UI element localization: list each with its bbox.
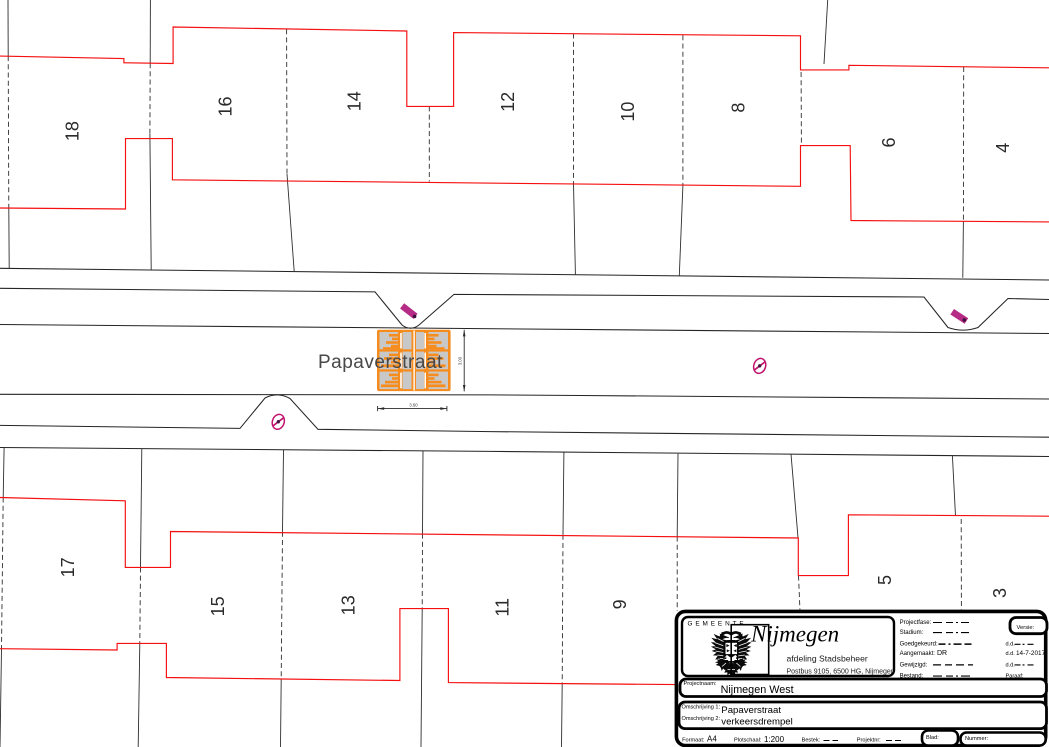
svg-text:Formaat:: Formaat:	[682, 737, 705, 743]
svg-text:d.d.: d.d.	[1006, 651, 1016, 657]
svg-text:6: 6	[879, 137, 899, 147]
svg-text:A4: A4	[707, 735, 717, 744]
svg-text:Projektnr:: Projektnr:	[857, 737, 881, 743]
svg-text:18: 18	[62, 121, 82, 141]
svg-text:Papaverstraat: Papaverstraat	[318, 352, 443, 373]
svg-text:8: 8	[728, 103, 748, 113]
svg-text:17: 17	[58, 557, 78, 577]
svg-text:d.d.: d.d.	[1006, 663, 1016, 669]
svg-text:DR: DR	[937, 650, 947, 657]
svg-text:16: 16	[216, 96, 236, 116]
svg-text:14: 14	[344, 91, 364, 111]
svg-text:verkeersdrempel: verkeersdrempel	[721, 716, 792, 727]
svg-text:d.d.: d.d.	[1006, 642, 1016, 648]
svg-text:Papaverstraat: Papaverstraat	[721, 705, 781, 716]
svg-text:11: 11	[493, 598, 513, 617]
svg-text:afdeling Stadsbeheer: afdeling Stadsbeheer	[787, 654, 868, 664]
svg-text:3: 3	[990, 588, 1010, 598]
svg-text:Blad:: Blad:	[926, 735, 939, 741]
svg-text:Omschrijving 2:: Omschrijving 2:	[682, 716, 721, 722]
svg-text:Versie:: Versie:	[1017, 625, 1035, 631]
svg-text:Stadium:: Stadium:	[900, 630, 924, 636]
svg-text:15: 15	[208, 596, 228, 616]
svg-text:Gewijzigd:: Gewijzigd:	[900, 663, 928, 669]
svg-text:5: 5	[875, 575, 895, 585]
svg-text:Plotschaal:: Plotschaal:	[734, 737, 762, 743]
svg-text:Nummer:: Nummer:	[965, 736, 988, 742]
svg-text:Omschrijving 1:: Omschrijving 1:	[682, 705, 721, 711]
svg-text:Nijmegen West: Nijmegen West	[721, 684, 794, 696]
svg-text:3.60: 3.60	[409, 403, 418, 408]
svg-text:10: 10	[618, 102, 638, 122]
svg-text:Projectfase:: Projectfase:	[900, 620, 932, 626]
svg-text:Aangemaakt:: Aangemaakt:	[900, 651, 936, 657]
svg-text:4: 4	[993, 143, 1013, 153]
svg-text:12: 12	[498, 92, 518, 112]
svg-text:Bestek:: Bestek:	[802, 737, 821, 743]
svg-text:Nijmegen: Nijmegen	[750, 622, 839, 647]
svg-text:Postbus 9105, 6500 HG, Nijme: Postbus 9105, 6500 HG, Nijmegen	[787, 668, 895, 675]
svg-text:9: 9	[610, 599, 630, 609]
svg-text:3.00: 3.00	[458, 356, 463, 365]
svg-text:13: 13	[339, 595, 359, 615]
svg-text:Projectnaam:: Projectnaam:	[684, 681, 717, 687]
svg-text:14-7-2017: 14-7-2017	[1016, 650, 1046, 657]
svg-text:Goedgekeurd:: Goedgekeurd:	[900, 642, 938, 648]
svg-text:1:200: 1:200	[764, 735, 785, 744]
